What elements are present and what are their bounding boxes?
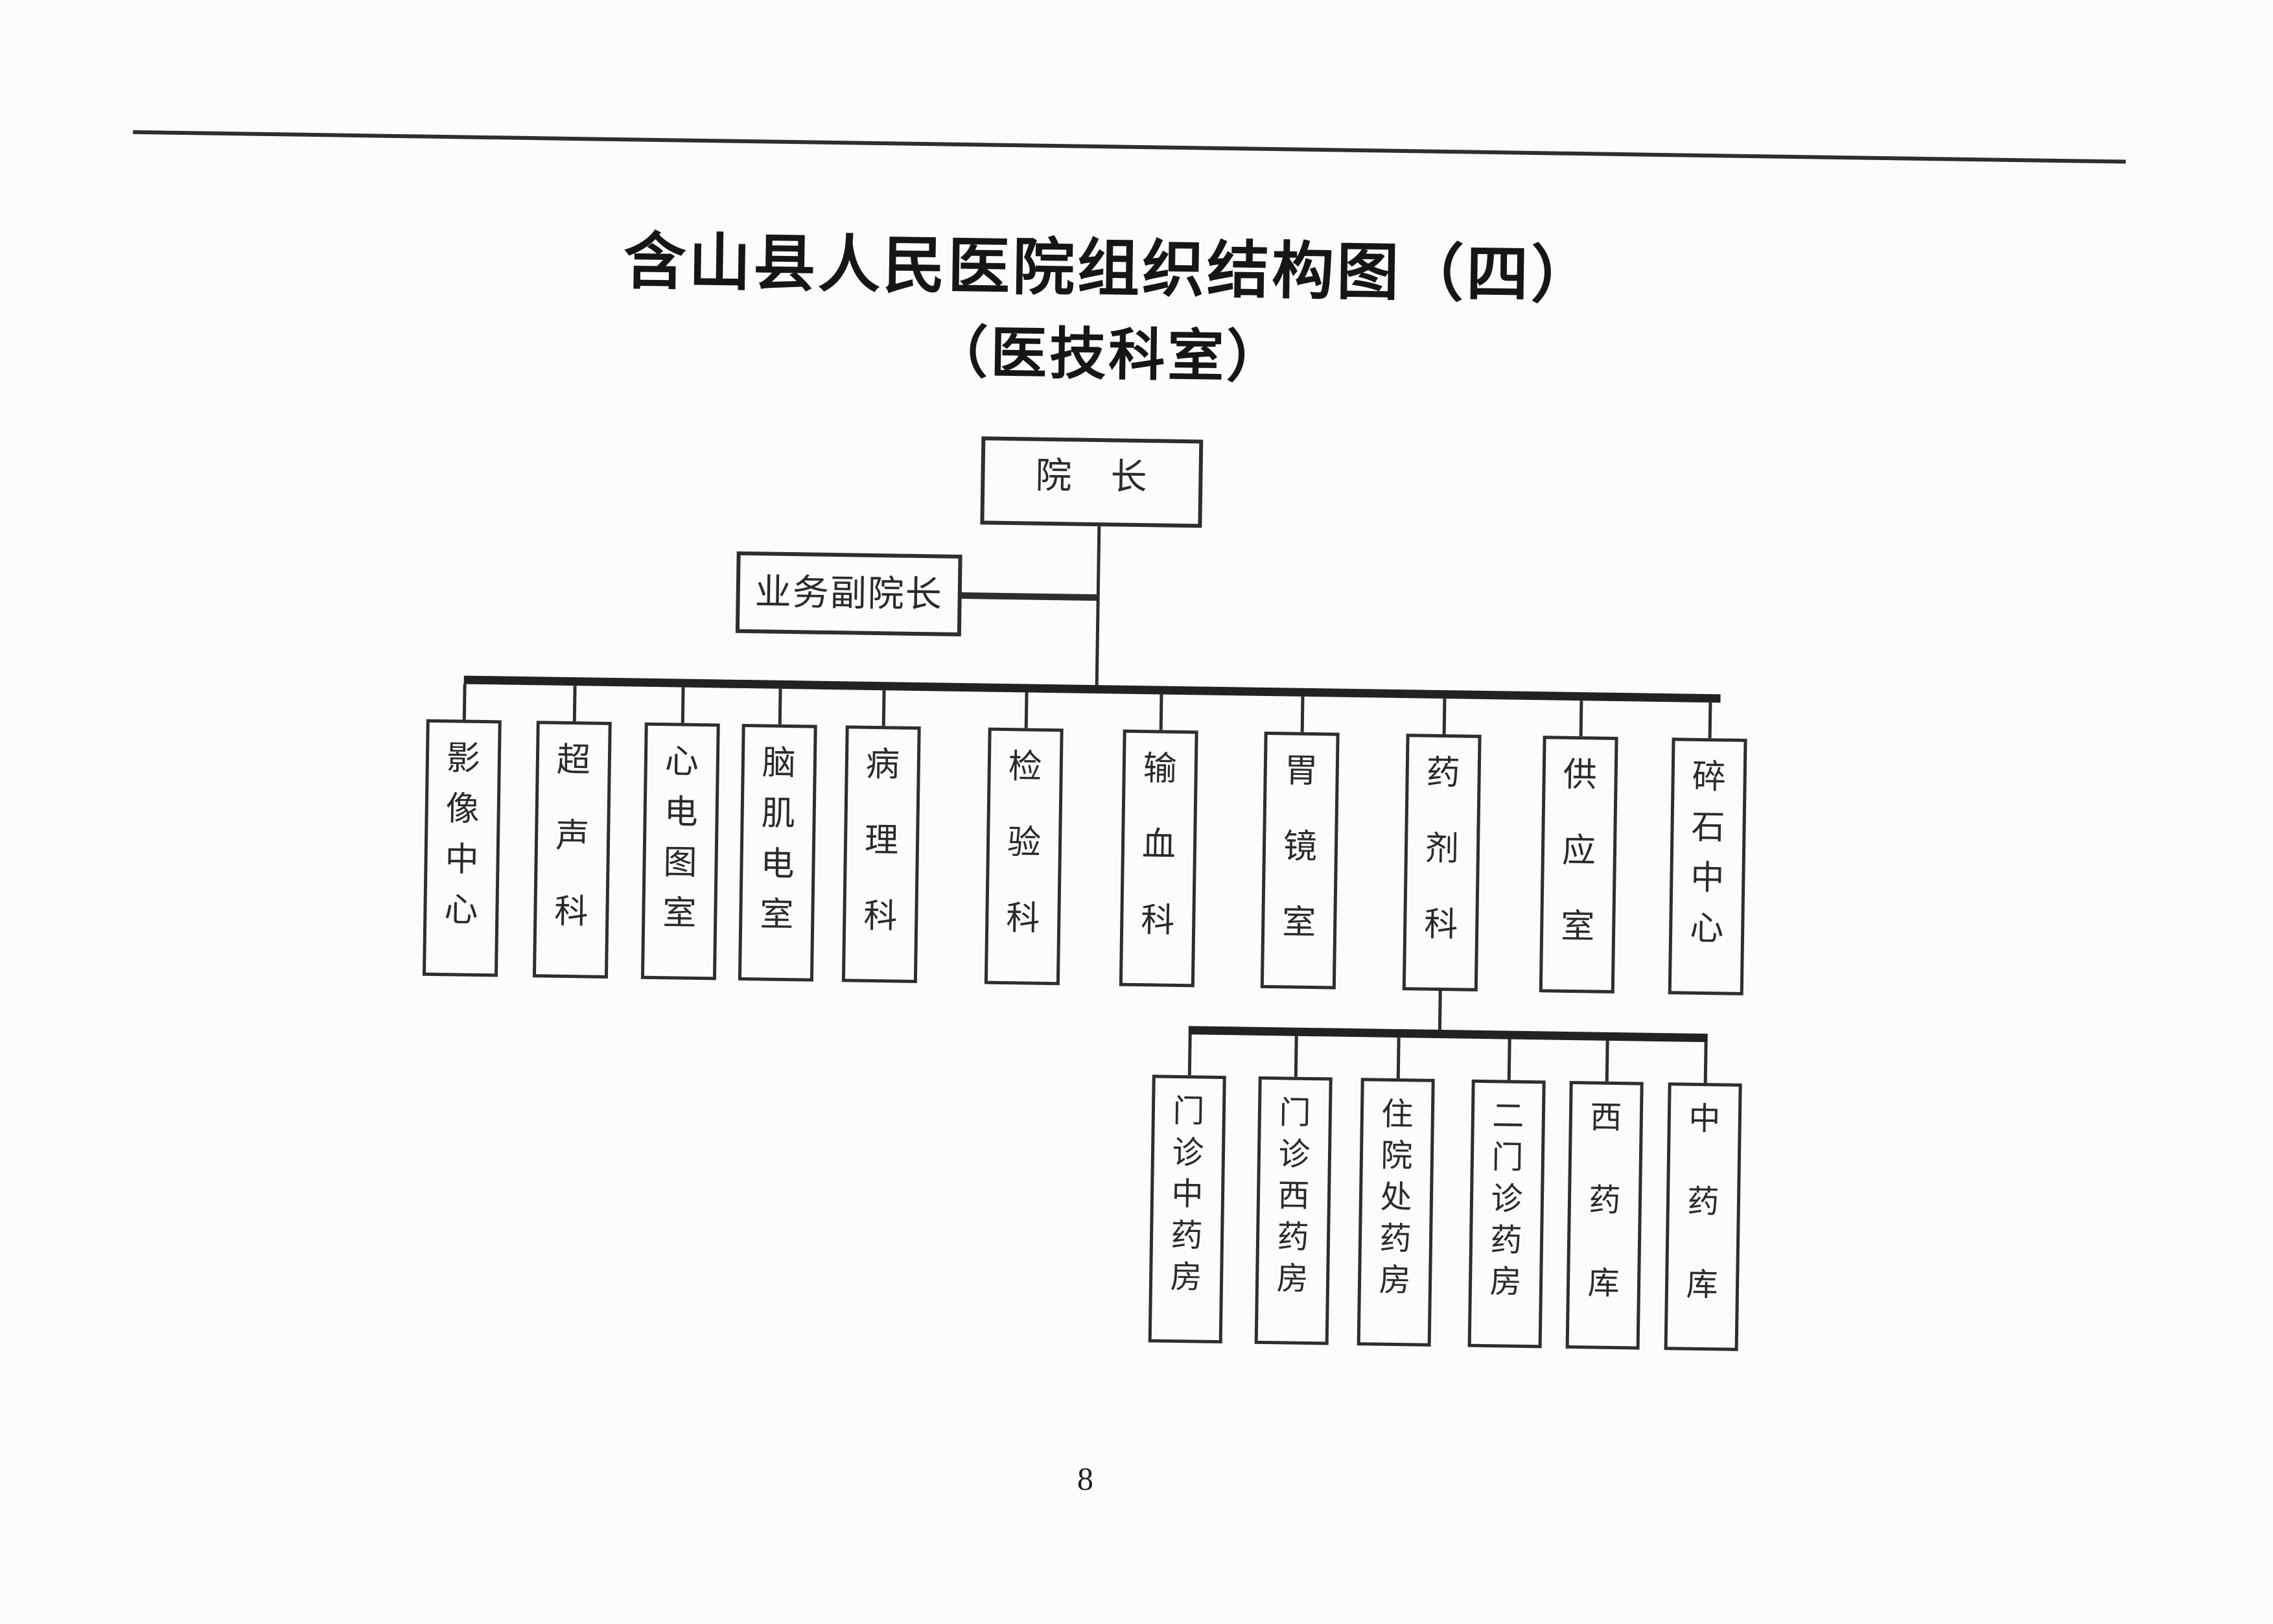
scanned-org-chart-page: 含山县人民医院组织结构图（四） （医技科室） 院 长 业务副院长 影像中心 超声… (0, 0, 2273, 1624)
connector-dept-line (573, 686, 577, 721)
connector-dept-line (778, 689, 782, 725)
dept-label-char: 中 (1688, 1103, 1721, 1135)
dept-label-char: 西 (1277, 1179, 1310, 1212)
dept-label-char: 超 (556, 744, 590, 778)
dept-label-char: 图 (663, 846, 697, 881)
connector-dept-line (1025, 692, 1029, 728)
connector-dept-line (463, 684, 467, 720)
page-title: 含山县人民医院组织结构图（四） (8, 222, 2212, 316)
dept-label-char: 科 (554, 896, 589, 930)
dept-label-char: 诊 (1172, 1137, 1204, 1169)
dept-label-char: 应 (1562, 835, 1596, 869)
dept-label-char: 科 (1006, 902, 1040, 936)
connector-dept-line (1443, 699, 1447, 734)
dept-label-char: 剂 (1425, 833, 1460, 867)
dept-box-imaging-center: 影像中心 (423, 719, 502, 977)
dept-label-char: 像 (445, 793, 480, 827)
dept-label-char: 药 (1379, 1223, 1412, 1255)
dept-label-char: 药 (1687, 1186, 1719, 1218)
connector-sub-line (1397, 1038, 1401, 1078)
connector-vice-line (960, 592, 1099, 601)
dept-label-char: 影 (447, 742, 481, 776)
connector-dept-line (1301, 697, 1305, 732)
dept-label-char: 药 (1171, 1220, 1203, 1252)
pharmacy-box-outpatient-tcm: 门诊中药房 (1148, 1074, 1226, 1343)
dept-box-gastroscopy-room: 胃镜室 (1261, 732, 1340, 990)
connector-sub-line (1704, 1042, 1708, 1083)
pharmacy-box-second-outpatient: 二门诊药房 (1468, 1080, 1546, 1349)
dept-box-pathology: 病理科 (842, 725, 921, 983)
connector-sub-line (1605, 1041, 1609, 1082)
dept-label-char: 石 (1691, 811, 1725, 846)
dept-label-char: 库 (1686, 1269, 1718, 1301)
dept-label-char: 心 (444, 894, 478, 928)
dept-label-char: 血 (1142, 828, 1176, 863)
dept-label-char: 胃 (1284, 754, 1318, 789)
dept-label-char: 输 (1143, 752, 1177, 787)
dept-label-char: 药 (1277, 1221, 1309, 1253)
dept-label-char: 理 (865, 824, 899, 859)
dept-label-char: 验 (1007, 826, 1042, 861)
dept-label-char: 中 (1690, 862, 1725, 896)
dept-label-char: 西 (1590, 1101, 1622, 1133)
dept-label-char: 房 (1170, 1261, 1202, 1293)
page-number: 8 (1053, 1462, 1118, 1495)
pharmacy-box-western-storehouse: 西药库 (1566, 1081, 1644, 1350)
dept-label-char: 药 (1589, 1184, 1621, 1216)
dept-box-pharmacy-dept: 药剂科 (1403, 734, 1482, 992)
page-subtitle: （医技科室） (6, 310, 2211, 399)
dept-box-ultrasound: 超声科 (533, 721, 612, 979)
connector-dept-line (1708, 702, 1712, 738)
dept-box-supply-room: 供应室 (1539, 736, 1618, 993)
dept-label-char: 诊 (1491, 1183, 1523, 1215)
dept-label-char: 病 (865, 748, 900, 783)
pharmacy-box-tcm-storehouse: 中药库 (1664, 1082, 1742, 1351)
dept-box-blood-transfusion: 输血科 (1119, 730, 1198, 988)
dept-label-char: 门 (1279, 1096, 1311, 1129)
dept-label-char: 科 (1424, 909, 1458, 943)
dept-label-char: 中 (445, 843, 479, 877)
dept-label-char: 室 (760, 898, 794, 933)
connector-pharmacy-line (1438, 991, 1442, 1030)
dept-label-char: 门 (1491, 1141, 1524, 1174)
pharmacy-box-outpatient-western: 门诊西药房 (1255, 1076, 1333, 1345)
dept-label-char: 碎 (1692, 761, 1726, 795)
dept-label-char: 镜 (1283, 830, 1318, 864)
dept-label-char: 肌 (761, 797, 795, 831)
dept-label-char: 房 (1276, 1262, 1309, 1295)
connector-sub-line (1508, 1039, 1511, 1080)
dept-label-char: 脑 (762, 747, 796, 781)
dept-label-char: 诊 (1278, 1138, 1311, 1170)
dept-label-char: 室 (1282, 906, 1316, 940)
dept-label-char: 门 (1172, 1095, 1205, 1128)
vice-director-box: 业务副院长 (736, 551, 962, 636)
dept-label-char: 检 (1008, 750, 1042, 785)
vice-director-label: 业务副院长 (754, 574, 943, 613)
header-rule (133, 130, 2126, 164)
dept-label-char: 声 (555, 820, 590, 854)
dept-label-char: 房 (1489, 1266, 1522, 1298)
connector-director-line (1095, 526, 1101, 685)
dept-box-lithotripsy-center: 碎石中心 (1668, 737, 1747, 995)
level2-bus-bar (464, 676, 1721, 703)
pharmacy-box-inpatient: 住院处药房 (1357, 1078, 1435, 1347)
dept-label-char: 住 (1381, 1098, 1414, 1131)
dept-box-laboratory: 检验科 (985, 728, 1064, 986)
dept-label-char: 二 (1492, 1100, 1524, 1132)
director-box: 院 长 (980, 436, 1203, 528)
dept-box-eeg-emg-room: 脑肌电室 (738, 724, 817, 982)
dept-label-char: 室 (1561, 911, 1595, 945)
dept-label-char: 电 (664, 796, 698, 830)
connector-sub-line (1188, 1034, 1192, 1075)
dept-box-ecg-room: 心电图室 (641, 723, 720, 980)
dept-label-char: 中 (1171, 1178, 1204, 1211)
dept-label-char: 科 (1141, 904, 1175, 938)
connector-sub-line (1294, 1036, 1298, 1077)
dept-label-char: 药 (1490, 1224, 1522, 1257)
dept-label-char: 科 (863, 900, 898, 934)
connector-dept-line (882, 690, 886, 726)
dept-label-char: 处 (1380, 1181, 1412, 1214)
director-label: 院 长 (1035, 458, 1148, 496)
connector-dept-line (681, 688, 685, 723)
dept-label-char: 室 (662, 897, 697, 931)
dept-label-char: 供 (1563, 759, 1597, 793)
level3-bus-bar (1189, 1026, 1708, 1042)
dept-label-char: 心 (1690, 912, 1724, 947)
connector-dept-line (1160, 695, 1163, 730)
dept-label-char: 库 (1587, 1267, 1620, 1299)
dept-label-char: 心 (664, 745, 699, 780)
connector-dept-line (1579, 701, 1583, 736)
dept-label-char: 药 (1426, 757, 1460, 791)
dept-label-char: 房 (1379, 1264, 1411, 1297)
dept-label-char: 电 (760, 848, 795, 882)
dept-label-char: 院 (1381, 1140, 1413, 1172)
